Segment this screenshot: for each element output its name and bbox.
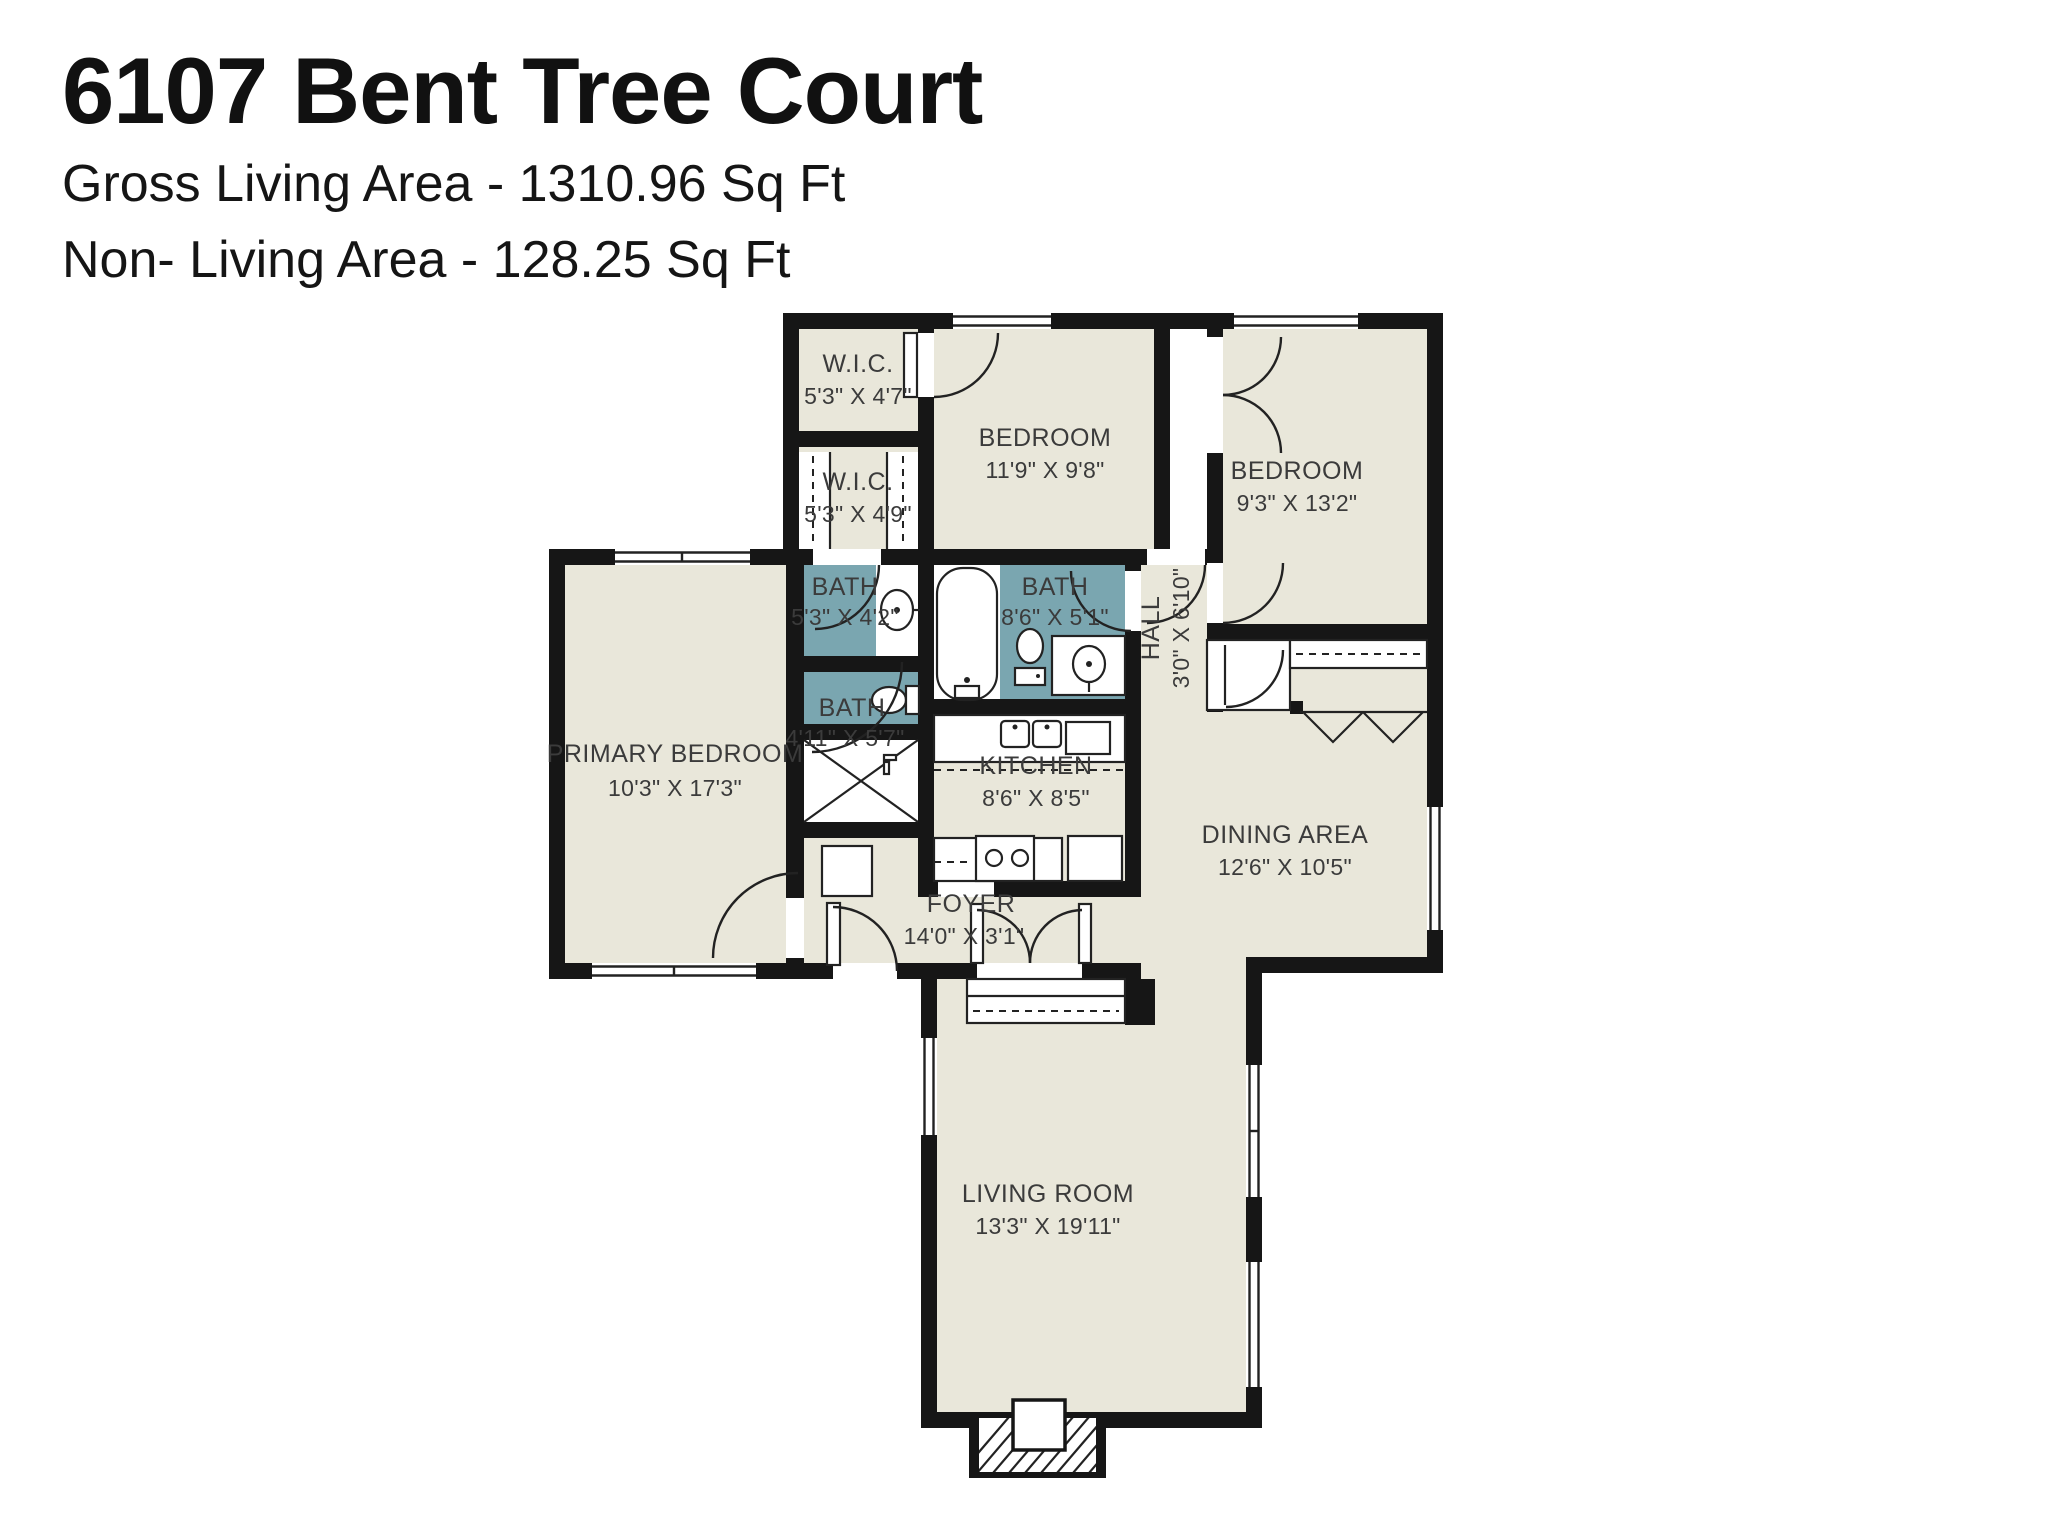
- room-dims-kitchen: 8'6" X 8'5": [982, 785, 1090, 811]
- floor-plan: W.I.C. 5'3" X 4'7" BEDROOM 11'9" X 9'8" …: [0, 0, 2048, 1536]
- wic-upper-floor: [799, 329, 918, 431]
- room-label-wic-lower: W.I.C.: [822, 468, 893, 496]
- room-dims-bedroom-top: 11'9" X 9'8": [985, 457, 1104, 483]
- window-primary-bottom: [592, 963, 756, 979]
- window-dining-right: [1427, 807, 1443, 930]
- firebox: [1013, 1400, 1065, 1450]
- room-label-wic-upper: W.I.C.: [822, 350, 893, 378]
- toilet-main-bath: [1017, 629, 1043, 663]
- room-dims-hall: 3'0" X 6'10": [1168, 568, 1194, 689]
- window-primary-top: [615, 549, 750, 565]
- window-bedroom-right: [1234, 313, 1358, 329]
- room-dims-primary-bedroom: 10'3" X 17'3": [608, 775, 742, 801]
- refrigerator: [1068, 836, 1122, 881]
- room-dims-foyer: 14'0" X 3'1": [904, 923, 1025, 949]
- tub-faucet: [955, 686, 979, 698]
- room-label-hall: HALL: [1137, 596, 1165, 661]
- room-dims-bath-primary: 4'11" X 5'7": [785, 725, 904, 751]
- room-label-foyer: FOYER: [927, 890, 1016, 918]
- room-dims-dining: 12'6" X 10'5": [1218, 854, 1352, 880]
- room-label-living: LIVING ROOM: [962, 1180, 1134, 1208]
- room-label-dining: DINING AREA: [1202, 821, 1369, 849]
- room-dims-wic-lower: 5'3" X 4'9": [804, 501, 912, 527]
- dishwasher: [1066, 722, 1110, 754]
- utility-box: [822, 846, 872, 896]
- room-label-bath-main: BATH: [1022, 573, 1089, 601]
- room-label-bath-primary: BATH: [819, 694, 886, 722]
- room-dims-bedroom-right: 9'3" X 13'2": [1237, 490, 1358, 516]
- room-label-bedroom-right: BEDROOM: [1231, 457, 1364, 485]
- room-label-primary-bedroom: PRIMARY BEDROOM: [547, 740, 804, 768]
- room-label-bedroom-top: BEDROOM: [979, 424, 1112, 452]
- room-dims-bath-main: 8'6" X 5'1": [1001, 604, 1109, 630]
- room-dims-bath-hall: 5'3" X 4'2": [791, 604, 899, 630]
- room-dims-living: 13'3" X 19'11": [975, 1213, 1120, 1239]
- window-living-right-upper: [1246, 1065, 1262, 1197]
- window-living-right-lower: [1246, 1262, 1262, 1387]
- range: [976, 836, 1034, 881]
- foyer-closet: [967, 979, 1125, 1023]
- window-living-left: [921, 1038, 937, 1135]
- room-dims-wic-upper: 5'3" X 4'7": [804, 383, 912, 409]
- window-bedroom-top: [953, 313, 1051, 329]
- room-label-bath-hall: BATH: [812, 573, 879, 601]
- room-label-kitchen: KITCHEN: [979, 752, 1092, 780]
